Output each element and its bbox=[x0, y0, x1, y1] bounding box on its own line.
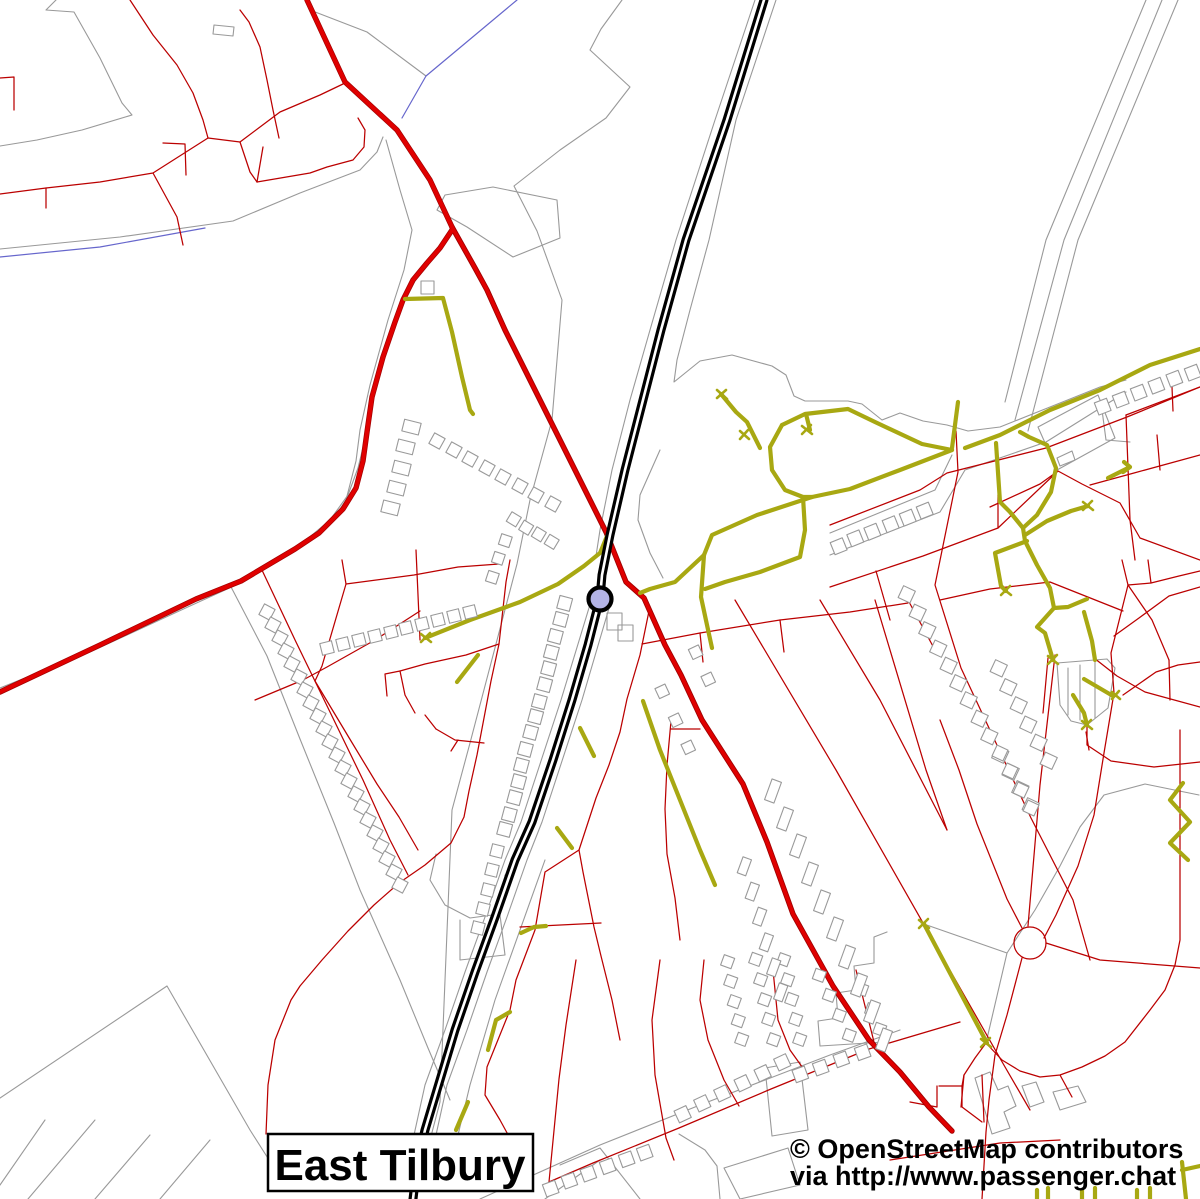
svg-text:East Tilbury: East Tilbury bbox=[274, 1141, 526, 1190]
svg-text:via http://www.passenger.chat: via http://www.passenger.chat bbox=[790, 1161, 1176, 1191]
svg-text:© OpenStreetMap contributors: © OpenStreetMap contributors bbox=[790, 1134, 1183, 1164]
